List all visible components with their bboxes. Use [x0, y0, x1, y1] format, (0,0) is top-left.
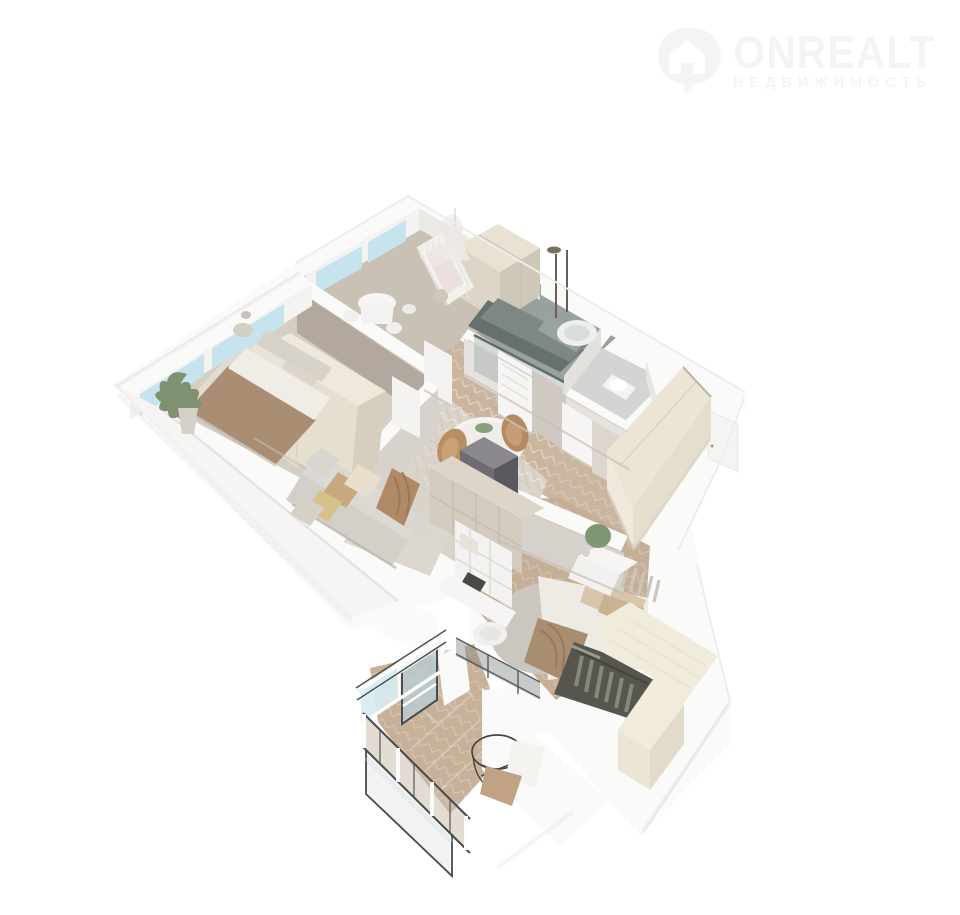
svg-text:НЕДВИЖИМОСТЬ: НЕДВИЖИМОСТЬ	[733, 75, 933, 91]
svg-text:ONREALT: ONREALT	[734, 28, 936, 78]
